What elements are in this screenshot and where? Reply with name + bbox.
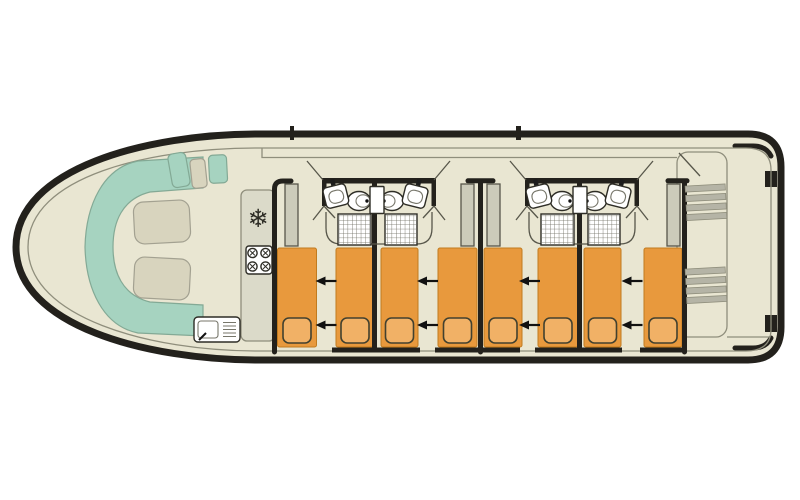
wardrobe xyxy=(487,184,500,246)
galley-sink xyxy=(194,317,240,342)
wardrobe xyxy=(667,184,680,246)
berth-pillow xyxy=(341,318,369,343)
cistern xyxy=(573,187,587,214)
mooring-cleat xyxy=(516,126,521,140)
berth-pillow xyxy=(386,318,414,343)
boat-floor-plan: ❄ xyxy=(0,0,800,500)
berth-pillow xyxy=(444,318,472,343)
berth-pillow xyxy=(283,318,311,343)
stove xyxy=(246,246,272,274)
berth-pillow xyxy=(489,318,517,343)
cistern xyxy=(370,187,384,214)
burner-icon xyxy=(261,248,270,257)
wardrobe xyxy=(285,184,298,246)
burner-icon xyxy=(248,262,257,271)
mooring-cleat xyxy=(290,126,294,140)
berth-pillow xyxy=(589,318,617,343)
wardrobe xyxy=(461,184,474,246)
snowflake-icon: ❄ xyxy=(248,204,269,233)
berth-pillow xyxy=(649,318,677,343)
floor-plan-canvas: ❄ xyxy=(0,0,800,500)
burner-icon xyxy=(261,262,270,271)
berth-pillow xyxy=(544,318,572,343)
burner-icon xyxy=(248,248,257,257)
